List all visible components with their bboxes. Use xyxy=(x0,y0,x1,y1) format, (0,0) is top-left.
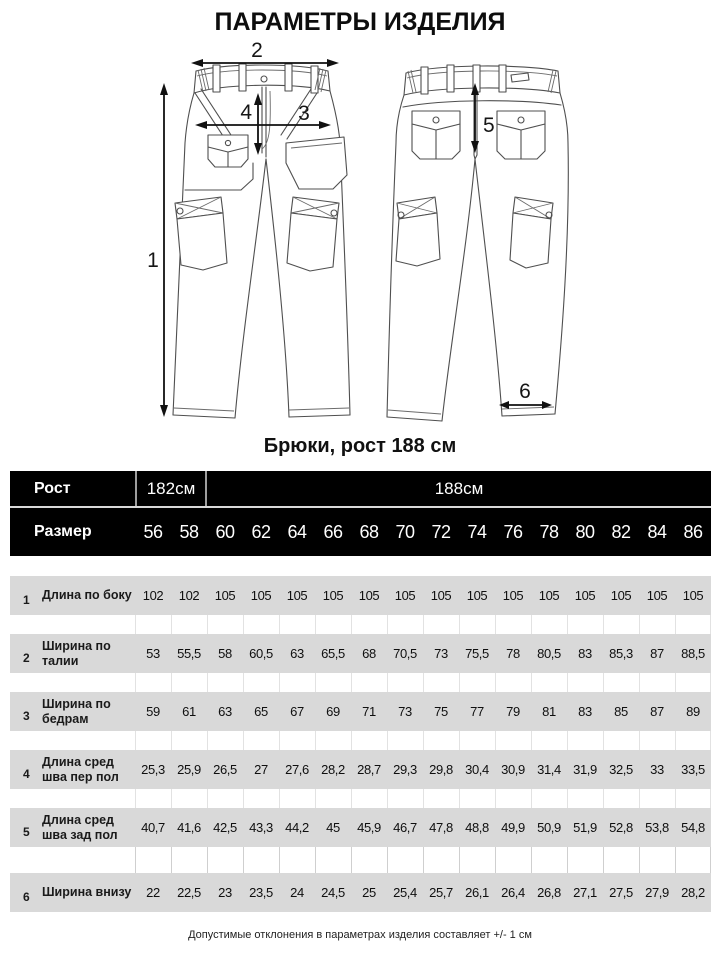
row-number: 5 xyxy=(23,825,36,839)
parameter-value-cell: 102 xyxy=(171,588,207,603)
parameter-value-cell: 67 xyxy=(279,704,315,719)
parameter-value-cell: 81 xyxy=(531,704,567,719)
parameter-value-cell: 75 xyxy=(423,704,459,719)
row-gap-cell xyxy=(603,731,639,750)
row-gap-cell xyxy=(171,847,207,873)
size-column-header: 62 xyxy=(243,522,279,543)
row-gap-cell xyxy=(10,731,135,750)
measure-arrow-5 xyxy=(471,83,479,153)
belt-loop xyxy=(447,65,454,92)
row-gap-cell xyxy=(567,731,603,750)
row-gap-cell xyxy=(243,731,279,750)
size-table: Рост 182см 188см Размер 5658606264666870… xyxy=(10,471,711,912)
parameter-value-cell: 29,3 xyxy=(387,762,423,777)
row-gap-cell xyxy=(171,615,207,634)
parameter-value-cell: 59 xyxy=(135,704,171,719)
parameter-value-cell: 85,3 xyxy=(603,646,639,661)
belt-loop xyxy=(239,64,246,91)
size-column-header: 56 xyxy=(135,522,171,543)
parameter-row: 5Длина сред шва зад пол40,741,642,543,34… xyxy=(10,808,711,847)
parameter-value-cell: 70,5 xyxy=(387,646,423,661)
size-column-header: 76 xyxy=(495,522,531,543)
size-column-header: 86 xyxy=(675,522,711,543)
parameter-row: 1Длина по боку10210210510510510510510510… xyxy=(10,576,711,615)
parameter-value-cell: 30,9 xyxy=(495,762,531,777)
parameter-value-cell: 80,5 xyxy=(531,646,567,661)
size-column-header: 84 xyxy=(639,522,675,543)
belt-loop xyxy=(285,64,292,91)
row-gap-cell xyxy=(351,673,387,692)
parameter-value-cell: 25,3 xyxy=(135,762,171,777)
parameter-value-cell: 73 xyxy=(387,704,423,719)
parameter-value-cell: 105 xyxy=(351,588,387,603)
parameter-value-cell: 73 xyxy=(423,646,459,661)
parameter-value-cell: 43,3 xyxy=(243,820,279,835)
row-gap-cell xyxy=(567,847,603,873)
parameter-value-cell: 24 xyxy=(279,885,315,900)
parameter-value-cell: 27,5 xyxy=(603,885,639,900)
row-gap-cell xyxy=(207,789,243,808)
parameter-value-cell: 61 xyxy=(171,704,207,719)
row-gap-cell xyxy=(567,789,603,808)
row-number: 2 xyxy=(23,651,36,665)
parameter-row: 6Ширина внизу2222,52323,52424,52525,425,… xyxy=(10,873,711,912)
measure-arrow-1 xyxy=(160,83,168,417)
row-gap-cell xyxy=(675,615,711,634)
parameter-value-cell: 105 xyxy=(675,588,711,603)
row-gap-cell xyxy=(675,673,711,692)
row-label-text: Длина сред шва зад пол xyxy=(36,813,135,842)
parameter-value-cell: 65 xyxy=(243,704,279,719)
parameter-value-cell: 88,5 xyxy=(675,646,711,661)
measure-label-3: 3 xyxy=(298,102,310,125)
row-gap-cell xyxy=(531,615,567,634)
size-column-header: 58 xyxy=(171,522,207,543)
parameter-value-cell: 85 xyxy=(603,704,639,719)
measure-label-6: 6 xyxy=(519,380,531,403)
row-gap-cell xyxy=(315,789,351,808)
row-gap-cell xyxy=(423,731,459,750)
parameter-value-cell: 83 xyxy=(567,646,603,661)
row-gap-cell xyxy=(567,615,603,634)
parameter-value-cell: 78 xyxy=(495,646,531,661)
trousers-technical-drawing: 1 2 3 4 5 6 xyxy=(145,37,575,433)
parameter-value-cell: 27,1 xyxy=(567,885,603,900)
parameter-value-cell: 105 xyxy=(207,588,243,603)
parameter-value-cell: 27,6 xyxy=(279,762,315,777)
size-row-label: Размер xyxy=(10,523,135,541)
row-gap-cell xyxy=(459,673,495,692)
parameter-value-cell: 52,8 xyxy=(603,820,639,835)
parameter-label-cell: 4Длина сред шва пер пол xyxy=(10,755,135,784)
measure-label-1: 1 xyxy=(147,249,159,272)
size-column-header: 68 xyxy=(351,522,387,543)
parameter-row: 2Ширина по талии5355,55860,56365,56870,5… xyxy=(10,634,711,673)
parameter-value-cell: 28,7 xyxy=(351,762,387,777)
parameter-label-cell: 1Длина по боку xyxy=(10,585,135,607)
row-number: 1 xyxy=(23,593,36,607)
parameter-value-cell: 105 xyxy=(531,588,567,603)
size-row: Размер 56586062646668707274767880828486 xyxy=(10,508,711,556)
back-pocket-left xyxy=(412,111,460,159)
row-gap-cell xyxy=(243,789,279,808)
row-gap-cell xyxy=(675,731,711,750)
parameter-row: 3Ширина по бедрам59616365676971737577798… xyxy=(10,692,711,731)
parameter-row: 4Длина сред шва пер пол25,325,926,52727,… xyxy=(10,750,711,789)
measure-label-4: 4 xyxy=(240,101,252,124)
row-gap-cell xyxy=(423,615,459,634)
size-column-header: 72 xyxy=(423,522,459,543)
row-gap-cell xyxy=(387,731,423,750)
parameter-value-cell: 105 xyxy=(315,588,351,603)
row-gap-cell xyxy=(531,847,567,873)
row-label-text: Длина по боку xyxy=(36,588,132,602)
parameter-value-cell: 53,8 xyxy=(639,820,675,835)
row-gap-cell xyxy=(567,673,603,692)
parameter-value-cell: 102 xyxy=(135,588,171,603)
size-column-header: 60 xyxy=(207,522,243,543)
parameter-value-cell: 23 xyxy=(207,885,243,900)
size-column-header: 66 xyxy=(315,522,351,543)
parameter-value-cell: 105 xyxy=(639,588,675,603)
row-gap-cell xyxy=(423,847,459,873)
row-gap-cell xyxy=(603,615,639,634)
parameter-value-cell: 63 xyxy=(207,704,243,719)
row-gap-cell xyxy=(639,731,675,750)
row-gap-cell xyxy=(10,673,135,692)
parameter-value-cell: 28,2 xyxy=(315,762,351,777)
row-gap-cell xyxy=(459,615,495,634)
parameter-value-cell: 75,5 xyxy=(459,646,495,661)
row-label-text: Ширина внизу xyxy=(36,885,131,899)
tolerance-note: Допустимые отклонения в параметрах издел… xyxy=(0,929,720,941)
height-group-182: 182см xyxy=(135,471,207,506)
row-number: 4 xyxy=(23,767,36,781)
row-gap-cell xyxy=(531,673,567,692)
row-gap-cell xyxy=(279,673,315,692)
row-number: 6 xyxy=(23,890,36,904)
height-row-label: Рост xyxy=(10,471,135,506)
parameter-value-cell: 22 xyxy=(135,885,171,900)
parameter-value-cell: 31,9 xyxy=(567,762,603,777)
front-cargo-pocket-right xyxy=(287,197,339,271)
row-gap-cell xyxy=(279,731,315,750)
parameter-value-cell: 71 xyxy=(351,704,387,719)
parameter-value-cell: 23,5 xyxy=(243,885,279,900)
row-gap-cell xyxy=(675,789,711,808)
parameter-value-cell: 54,8 xyxy=(675,820,711,835)
row-gap-cell xyxy=(603,847,639,873)
parameter-value-cell: 46,7 xyxy=(387,820,423,835)
parameter-value-cell: 105 xyxy=(243,588,279,603)
parameter-value-cell: 44,2 xyxy=(279,820,315,835)
back-waist-tab xyxy=(511,73,529,82)
diagram-caption: Брюки, рост 188 см xyxy=(0,435,720,458)
row-gap xyxy=(10,731,711,750)
row-gap-cell xyxy=(243,615,279,634)
row-gap-cell xyxy=(207,731,243,750)
row-number: 3 xyxy=(23,709,36,723)
belt-loop xyxy=(421,67,428,94)
trousers-front-view xyxy=(173,64,350,418)
parameter-label-cell: 2Ширина по талии xyxy=(10,639,135,668)
row-gap-cell xyxy=(351,789,387,808)
parameter-value-cell: 47,8 xyxy=(423,820,459,835)
row-gap-cell xyxy=(315,847,351,873)
row-gap xyxy=(10,847,711,873)
parameter-value-cell: 58 xyxy=(207,646,243,661)
parameter-value-cell: 25,9 xyxy=(171,762,207,777)
parameter-value-cell: 60,5 xyxy=(243,646,279,661)
row-gap-cell xyxy=(171,673,207,692)
parameter-value-cell: 45 xyxy=(315,820,351,835)
parameter-value-cell: 25,7 xyxy=(423,885,459,900)
size-column-header: 78 xyxy=(531,522,567,543)
row-gap-cell xyxy=(279,615,315,634)
parameter-value-cell: 32,5 xyxy=(603,762,639,777)
parameter-value-cell: 26,5 xyxy=(207,762,243,777)
belt-loop xyxy=(499,65,506,92)
table-header: Рост 182см 188см Размер 5658606264666870… xyxy=(10,471,711,556)
row-gap-cell xyxy=(171,789,207,808)
row-gap-cell xyxy=(207,847,243,873)
row-gap-cell xyxy=(603,789,639,808)
front-small-flap-pocket xyxy=(208,135,248,167)
parameter-value-cell: 55,5 xyxy=(171,646,207,661)
size-column-header: 70 xyxy=(387,522,423,543)
row-gap-cell xyxy=(351,615,387,634)
parameter-value-cell: 77 xyxy=(459,704,495,719)
measure-label-5: 5 xyxy=(483,114,495,137)
parameter-value-cell: 41,6 xyxy=(171,820,207,835)
height-group-188: 188см xyxy=(207,471,711,506)
back-cargo-pocket-right xyxy=(510,197,553,268)
measure-label-2: 2 xyxy=(251,39,263,62)
row-gap-cell xyxy=(495,731,531,750)
row-gap-cell xyxy=(351,731,387,750)
row-gap-cell xyxy=(603,673,639,692)
row-gap-cell xyxy=(459,731,495,750)
parameter-value-cell: 79 xyxy=(495,704,531,719)
parameter-value-cell: 105 xyxy=(459,588,495,603)
row-gap-cell xyxy=(10,847,135,873)
row-gap-cell xyxy=(675,847,711,873)
row-gap-cell xyxy=(135,673,171,692)
parameter-value-cell: 48,8 xyxy=(459,820,495,835)
parameter-value-cell: 45,9 xyxy=(351,820,387,835)
row-gap-cell xyxy=(279,789,315,808)
parameter-value-cell: 24,5 xyxy=(315,885,351,900)
row-gap-cell xyxy=(10,789,135,808)
row-gap-cell xyxy=(171,731,207,750)
parameter-value-cell: 29,8 xyxy=(423,762,459,777)
back-pocket-right xyxy=(497,111,545,159)
size-column-header: 82 xyxy=(603,522,639,543)
parameter-value-cell: 105 xyxy=(603,588,639,603)
row-gap-cell xyxy=(495,789,531,808)
parameter-value-cell: 51,9 xyxy=(567,820,603,835)
parameter-value-cell: 65,5 xyxy=(315,646,351,661)
row-gap-cell xyxy=(315,615,351,634)
row-label-text: Ширина по талии xyxy=(36,639,135,668)
parameter-value-cell: 87 xyxy=(639,704,675,719)
parameter-value-cell: 27,9 xyxy=(639,885,675,900)
row-gap-cell xyxy=(387,615,423,634)
row-label-text: Длина сред шва пер пол xyxy=(36,755,135,784)
parameter-value-cell: 28,2 xyxy=(675,885,711,900)
parameter-value-cell: 42,5 xyxy=(207,820,243,835)
parameter-value-cell: 105 xyxy=(279,588,315,603)
row-gap-cell xyxy=(423,673,459,692)
row-gap-cell xyxy=(135,789,171,808)
row-gap-cell xyxy=(135,847,171,873)
parameter-value-cell: 26,8 xyxy=(531,885,567,900)
row-gap-cell xyxy=(315,673,351,692)
row-gap-cell xyxy=(495,615,531,634)
parameter-value-cell: 53 xyxy=(135,646,171,661)
row-label-text: Ширина по бедрам xyxy=(36,697,135,726)
row-gap-cell xyxy=(495,847,531,873)
row-gap-cell xyxy=(387,789,423,808)
row-gap-cell xyxy=(279,847,315,873)
parameter-value-cell: 25,4 xyxy=(387,885,423,900)
measure-arrow-3 xyxy=(195,121,331,129)
parameter-value-cell: 105 xyxy=(567,588,603,603)
front-cargo-pocket-left xyxy=(175,197,227,270)
parameter-value-cell: 27 xyxy=(243,762,279,777)
front-patch-pocket-right xyxy=(286,137,347,189)
table-body: 1Длина по боку10210210510510510510510510… xyxy=(10,576,711,912)
size-column-header: 80 xyxy=(567,522,603,543)
parameter-value-cell: 105 xyxy=(387,588,423,603)
row-gap-cell xyxy=(423,789,459,808)
row-gap xyxy=(10,789,711,808)
parameter-value-cell: 26,4 xyxy=(495,885,531,900)
parameter-value-cell: 69 xyxy=(315,704,351,719)
row-gap-cell xyxy=(531,731,567,750)
row-gap-cell xyxy=(639,673,675,692)
row-gap-cell xyxy=(351,847,387,873)
size-column-header: 74 xyxy=(459,522,495,543)
row-gap-cell xyxy=(639,789,675,808)
row-gap-cell xyxy=(387,673,423,692)
height-row: Рост 182см 188см xyxy=(10,471,711,508)
parameter-value-cell: 105 xyxy=(495,588,531,603)
belt-loop xyxy=(213,65,220,92)
row-gap-cell xyxy=(459,847,495,873)
parameter-value-cell: 30,4 xyxy=(459,762,495,777)
row-gap xyxy=(10,615,711,634)
row-gap-cell xyxy=(495,673,531,692)
row-gap-cell xyxy=(387,847,423,873)
row-gap-cell xyxy=(243,847,279,873)
row-gap xyxy=(10,673,711,692)
row-gap-cell xyxy=(531,789,567,808)
back-cargo-pocket-left xyxy=(396,197,440,266)
parameter-value-cell: 50,9 xyxy=(531,820,567,835)
row-gap-cell xyxy=(207,615,243,634)
parameter-value-cell: 87 xyxy=(639,646,675,661)
front-slant-pocket-left xyxy=(195,89,231,139)
parameter-value-cell: 26,1 xyxy=(459,885,495,900)
row-gap-cell xyxy=(10,615,135,634)
parameter-value-cell: 83 xyxy=(567,704,603,719)
parameter-value-cell: 31,4 xyxy=(531,762,567,777)
parameter-value-cell: 49,9 xyxy=(495,820,531,835)
size-column-header: 64 xyxy=(279,522,315,543)
parameter-value-cell: 68 xyxy=(351,646,387,661)
row-gap-cell xyxy=(207,673,243,692)
parameter-label-cell: 6Ширина внизу xyxy=(10,882,135,904)
measure-arrow-4 xyxy=(254,93,262,155)
parameter-value-cell: 40,7 xyxy=(135,820,171,835)
parameter-value-cell: 33,5 xyxy=(675,762,711,777)
trousers-diagram: 1 2 3 4 5 6 xyxy=(145,37,575,433)
parameter-label-cell: 3Ширина по бедрам xyxy=(10,697,135,726)
row-gap-cell xyxy=(639,847,675,873)
parameter-label-cell: 5Длина сред шва зад пол xyxy=(10,813,135,842)
row-gap-cell xyxy=(639,615,675,634)
parameter-value-cell: 25 xyxy=(351,885,387,900)
row-gap-cell xyxy=(315,731,351,750)
parameter-value-cell: 22,5 xyxy=(171,885,207,900)
row-gap-cell xyxy=(243,673,279,692)
page-title: ПАРАМЕТРЫ ИЗДЕЛИЯ xyxy=(0,8,720,37)
parameter-value-cell: 33 xyxy=(639,762,675,777)
parameter-value-cell: 63 xyxy=(279,646,315,661)
parameter-value-cell: 89 xyxy=(675,704,711,719)
row-gap-cell xyxy=(459,789,495,808)
product-parameters-page: ПАРАМЕТРЫ ИЗДЕЛИЯ xyxy=(0,0,720,960)
row-gap-cell xyxy=(135,615,171,634)
row-gap-cell xyxy=(135,731,171,750)
parameter-value-cell: 105 xyxy=(423,588,459,603)
trousers-back-view xyxy=(387,65,568,421)
